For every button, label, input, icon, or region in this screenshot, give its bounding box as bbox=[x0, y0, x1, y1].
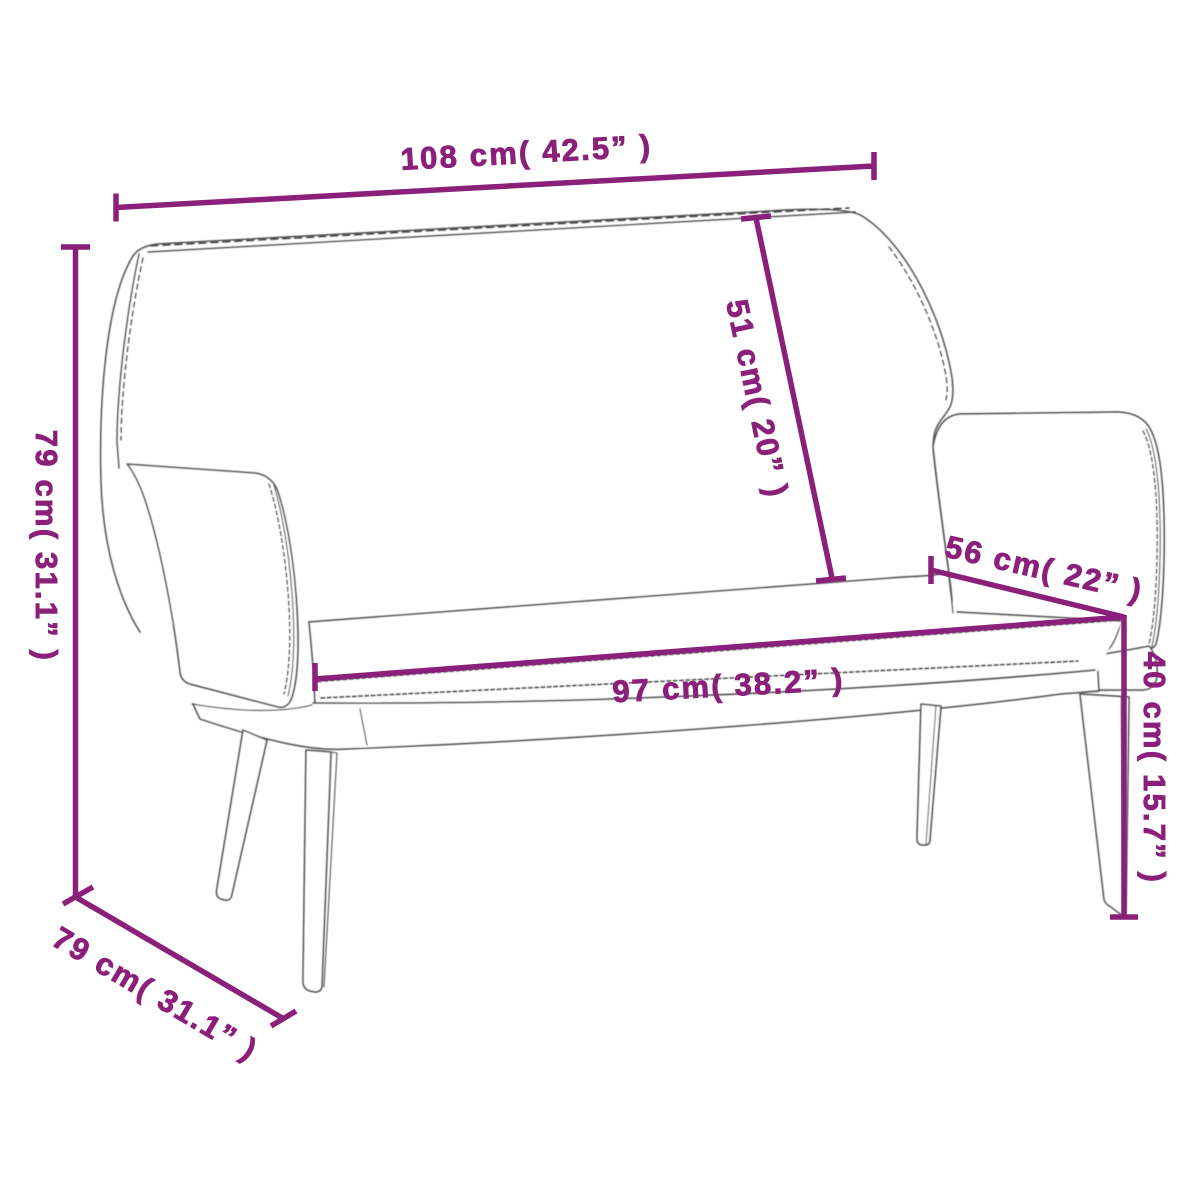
svg-text:79 cm( 31.1” ): 79 cm( 31.1” ) bbox=[29, 430, 64, 662]
svg-text:40 cm( 15.7” ): 40 cm( 15.7” ) bbox=[1137, 652, 1172, 884]
